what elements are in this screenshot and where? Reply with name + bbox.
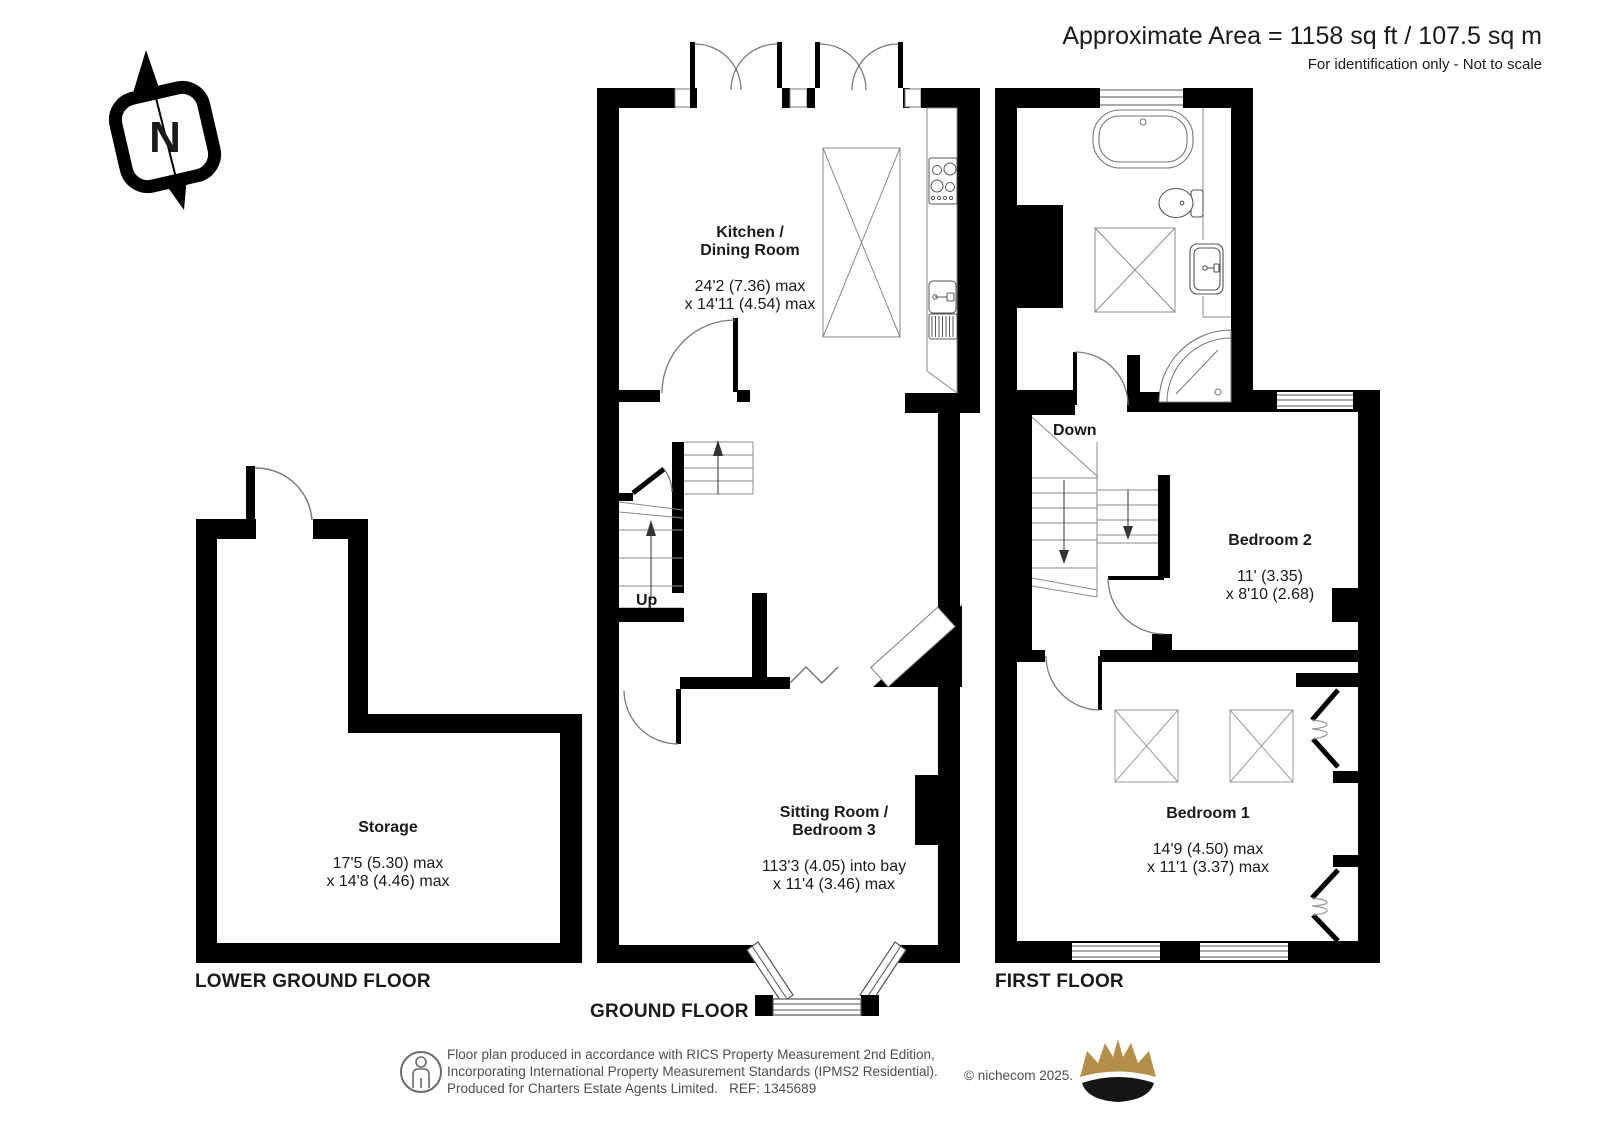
stairs-up <box>619 440 753 608</box>
person-icon <box>401 1052 441 1092</box>
toilet-icon <box>1159 189 1203 218</box>
room-label-storage: Storage 17'5 (5.30) max x 14'8 (4.46) ma… <box>278 801 498 909</box>
room-dims: 17'5 (5.30) max x 14'8 (4.46) max <box>278 855 498 891</box>
compass-north-label: N <box>141 113 189 163</box>
room-name: Bedroom 2 <box>1160 532 1380 550</box>
copyright-text: © nichecom 2025. <box>964 1068 1073 1083</box>
basin-icon <box>1190 244 1223 294</box>
room-name: Kitchen / Dining Room <box>640 224 860 260</box>
room-dims: 113'3 (4.05) into bay x 11'4 (3.46) max <box>724 858 944 894</box>
shower-tray-icon <box>1095 228 1175 312</box>
window <box>1072 943 1160 960</box>
skylight-icon <box>1115 710 1293 782</box>
bay-window <box>747 942 906 1016</box>
stairs-up-label: Up <box>636 592 657 610</box>
bathtub-icon <box>1093 110 1193 168</box>
stairs-down <box>1032 417 1158 597</box>
room-label-sitting-room: Sitting Room / Bedroom 3 113'3 (4.05) in… <box>724 786 944 912</box>
room-dims: 14'9 (4.50) max x 11'1 (3.37) max <box>1098 841 1318 877</box>
window <box>1277 392 1353 409</box>
room-label-bedroom-1: Bedroom 1 14'9 (4.50) max x 11'1 (3.37) … <box>1098 787 1318 895</box>
disclaimer-text: For identification only - Not to scale <box>1308 56 1542 73</box>
appliance-icon <box>929 314 957 339</box>
room-name: Bedroom 1 <box>1098 805 1318 823</box>
approximate-area-text: Approximate Area = 1158 sq ft / 107.5 sq… <box>1062 22 1542 51</box>
room-name: Sitting Room / Bedroom 3 <box>724 804 944 840</box>
room-label-bedroom-2: Bedroom 2 11' (3.35) x 8'10 (2.68) <box>1160 514 1380 622</box>
room-dims: 24'2 (7.36) max x 14'11 (4.54) max <box>640 278 860 314</box>
casement-window <box>1312 855 1360 941</box>
hob-icon <box>929 158 957 204</box>
lower-ground-floor-label: LOWER GROUND FLOOR <box>195 971 431 993</box>
kitchen-sink-icon <box>929 281 956 313</box>
french-doors <box>690 42 903 90</box>
corner-shower-icon <box>1159 330 1231 402</box>
window <box>1200 943 1288 960</box>
floorplan-page: Approximate Area = 1158 sq ft / 107.5 sq… <box>0 0 1600 1131</box>
first-floor-label: FIRST FLOOR <box>995 971 1124 993</box>
room-name: Storage <box>278 819 498 837</box>
window <box>1100 88 1183 108</box>
stairs-down-label: Down <box>1053 422 1097 440</box>
room-dims: 11' (3.35) x 8'10 (2.68) <box>1160 568 1380 604</box>
crown-logo <box>1080 1039 1156 1102</box>
footer-disclaimer: Floor plan produced in accordance with R… <box>447 1046 938 1097</box>
ground-floor-label: GROUND FLOOR <box>590 1001 749 1023</box>
casement-window <box>1296 673 1360 783</box>
kitchen-counter <box>927 108 957 393</box>
room-label-kitchen: Kitchen / Dining Room 24'2 (7.36) max x … <box>640 206 860 332</box>
